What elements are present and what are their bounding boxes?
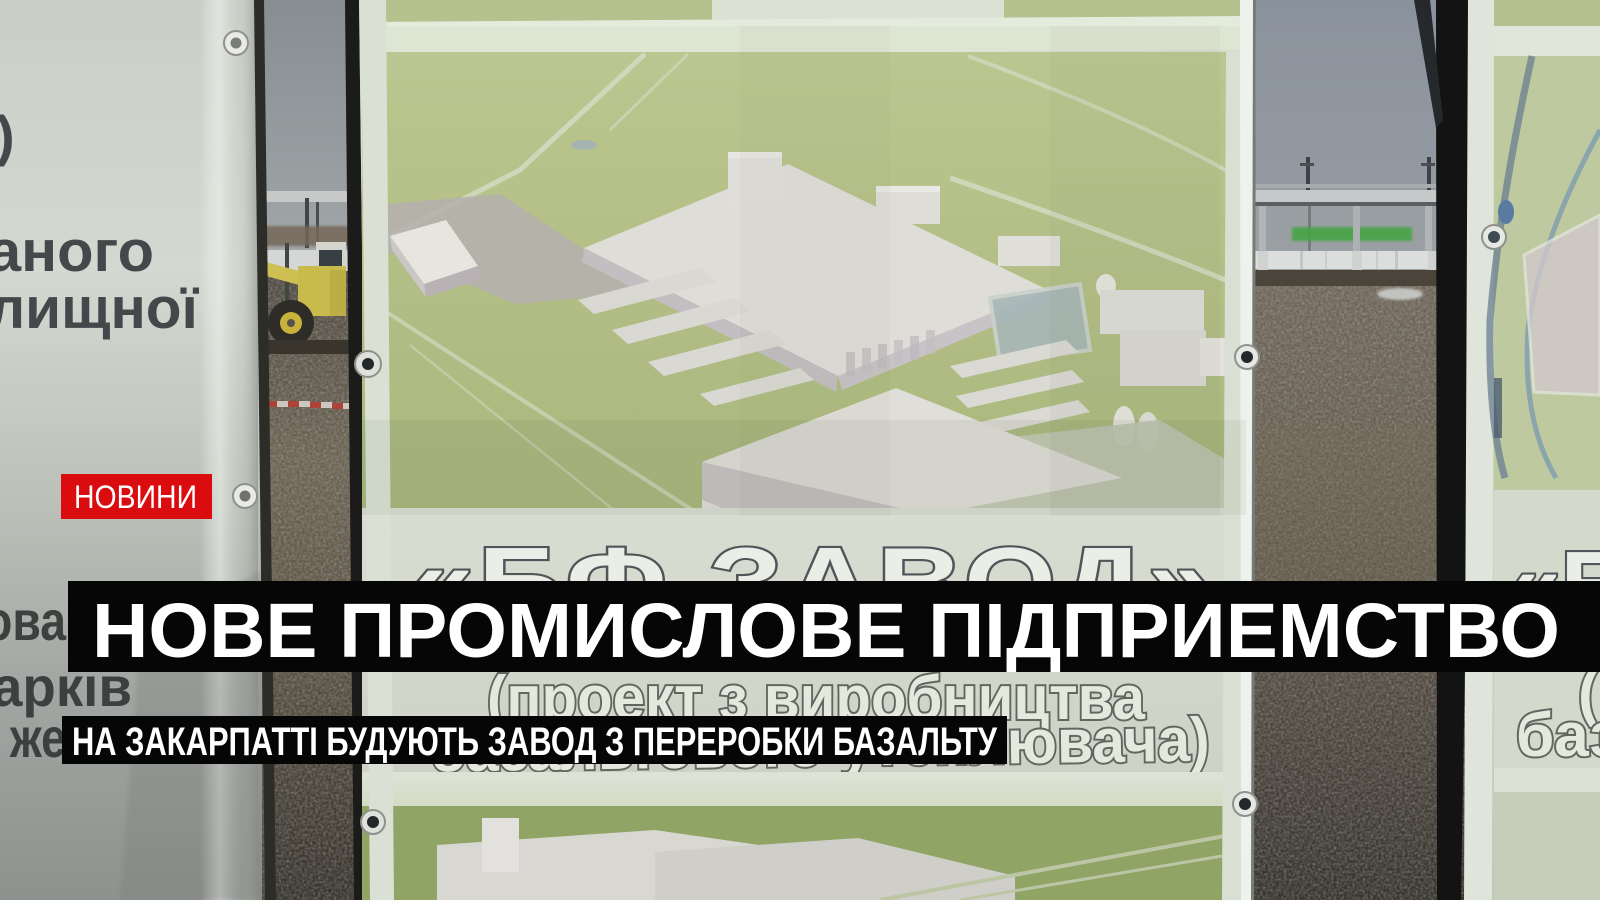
svg-text:НА ЗАКАРПАТТІ БУДУЮТЬ ЗАВОД З: НА ЗАКАРПАТТІ БУДУЮТЬ ЗАВОД З ПЕРЕРОБКИ … xyxy=(72,720,998,764)
svg-text:НОВЕ ПРОМИСЛОВЕ ПІДПРИЕМСТВО: НОВЕ ПРОМИСЛОВЕ ПІДПРИЕМСТВО xyxy=(92,588,1560,674)
svg-text:ова: ова xyxy=(0,589,67,652)
svg-text:НОВИНИ: НОВИНИ xyxy=(74,479,197,515)
svg-text:): ) xyxy=(0,104,15,167)
svg-text:баз: баз xyxy=(1516,701,1600,770)
svg-text:аного: аного xyxy=(0,219,154,284)
svg-text:лищної: лищної xyxy=(0,276,200,341)
svg-text:же: же xyxy=(9,706,66,769)
